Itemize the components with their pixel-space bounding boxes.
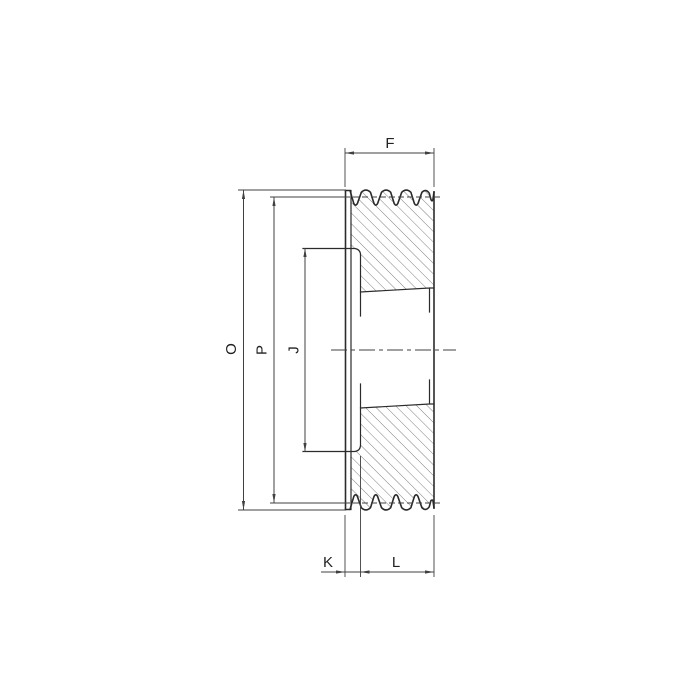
arrow-k-left [336, 570, 345, 573]
arrow-l-right [425, 570, 434, 573]
dim-label-O: O [223, 343, 240, 355]
arrow-o-bottom [242, 501, 245, 510]
bush-flange-bottom-edge [303, 384, 361, 452]
bore-line-top [361, 288, 435, 312]
rim-section-hatch-top [351, 190, 434, 292]
dim-label-P: P [254, 345, 271, 355]
arrow-p-bottom [272, 494, 275, 503]
arrow-j-top [303, 248, 306, 257]
bore-line-bottom [361, 380, 435, 408]
drawing-svg: F O P J K L [0, 0, 700, 700]
bush-flange-top-edge [303, 249, 361, 317]
pulley-section-drawing: F O P J K L [0, 0, 700, 700]
arrow-f-left [345, 151, 354, 154]
arrow-o-top [242, 190, 245, 199]
dim-label-J: J [286, 346, 303, 354]
dim-label-L: L [392, 554, 400, 571]
arrow-f-right [425, 151, 434, 154]
rim-section-hatch-bottom [351, 404, 434, 510]
dim-label-K: K [323, 554, 333, 571]
arrow-p-top [272, 197, 275, 206]
dim-label-F: F [385, 135, 394, 152]
arrow-j-bottom [303, 443, 306, 452]
dimension-O: O [223, 190, 346, 510]
dimension-J: J [286, 248, 307, 452]
dimension-F: F [345, 135, 434, 187]
arrow-l-left [361, 570, 370, 573]
